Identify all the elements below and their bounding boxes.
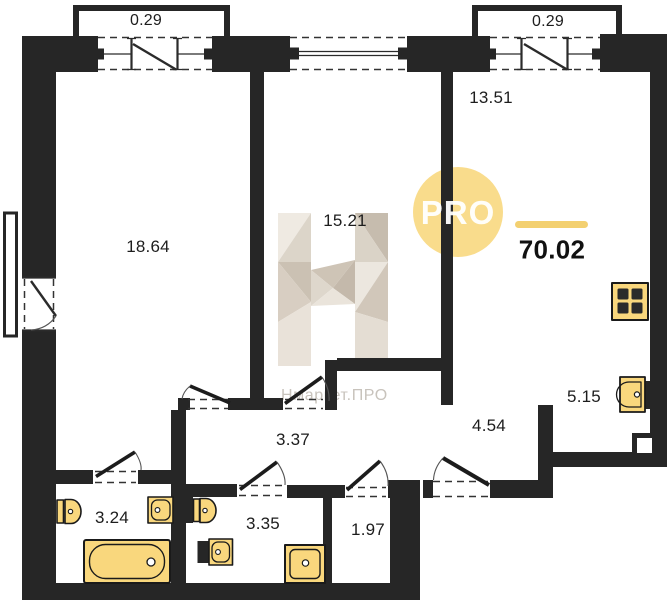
room-area-label-hallway: 3.37 — [276, 430, 310, 450]
shower-tray-icon — [285, 545, 325, 583]
room-area-label-bathroom-2: 3.35 — [246, 514, 280, 534]
door-entrance — [433, 458, 490, 497]
stove-icon — [612, 283, 648, 320]
toilet-icon — [57, 500, 81, 524]
room-area-label-room: 15.21 — [323, 211, 367, 231]
side-ledge — [5, 213, 17, 336]
room-area-label-bedroom: 18.64 — [126, 237, 170, 257]
room-area-label-bathroom-1: 3.24 — [95, 508, 129, 528]
vent-shaft — [637, 438, 652, 453]
window-living-top — [487, 38, 601, 71]
washbasin-icon-2 — [198, 539, 233, 565]
room-area-label-living: 13.51 — [469, 88, 513, 108]
window-bedroom-left — [22, 278, 56, 331]
room-area-label-entry-hall: 4.54 — [472, 416, 506, 436]
total-area-label: 70.02 — [519, 235, 586, 266]
kitchen-sink-icon — [617, 377, 651, 412]
watermark-pro-text: PRO — [421, 194, 496, 231]
bathtub-icon — [84, 540, 170, 583]
watermark-letter-logo — [278, 213, 388, 366]
door-bathroom-2 — [239, 462, 285, 496]
accent-line — [515, 221, 588, 228]
washbasin-icon — [148, 497, 173, 523]
door-bathroom-1 — [95, 452, 141, 483]
window-room-top — [290, 38, 407, 70]
room-area-label-balcony-right: 0.29 — [532, 13, 564, 31]
toilet-icon-2 — [186, 497, 216, 523]
window-bedroom-top — [95, 38, 213, 71]
floor-plan: Нмаркет.ПРО — [0, 0, 667, 600]
room-area-label-kitchen: 5.15 — [567, 387, 601, 407]
room-area-label-wardrobe: 1.97 — [351, 520, 385, 540]
room-area-label-balcony-left: 0.29 — [130, 12, 162, 30]
door-wardrobe — [346, 461, 388, 497]
